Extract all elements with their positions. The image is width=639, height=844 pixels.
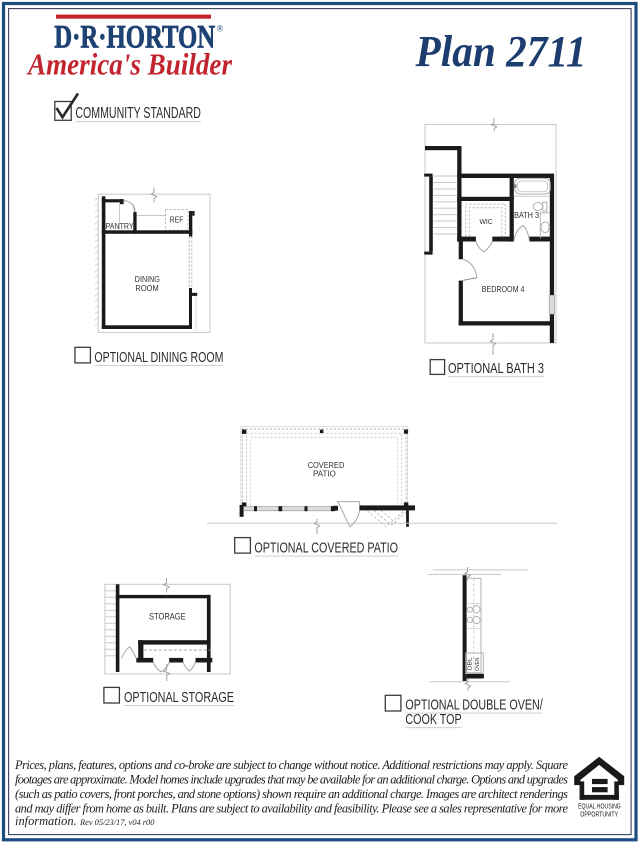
svg-text:OPPORTUNITY: OPPORTUNITY: [580, 810, 618, 819]
svg-text:footages are approximate. Mod: footages are approximate. Model homes in…: [15, 772, 568, 786]
svg-text:BATH 3: BATH 3: [514, 211, 539, 220]
svg-text:ROOM: ROOM: [135, 284, 158, 293]
svg-text:COOK TOP: COOK TOP: [405, 711, 461, 728]
svg-text:Plan 2711: Plan 2711: [415, 27, 587, 76]
svg-text:OPTIONAL COVERED PATIO: OPTIONAL COVERED PATIO: [254, 539, 398, 556]
svg-text:Prices, plans, features, optio: Prices, plans, features, options and co-…: [14, 758, 568, 772]
svg-text:REF: REF: [170, 216, 184, 225]
svg-text:COMMUNITY STANDARD: COMMUNITY STANDARD: [75, 105, 200, 122]
svg-text:®: ®: [217, 24, 224, 34]
svg-text:PANTRY: PANTRY: [106, 221, 134, 231]
svg-text:WIC: WIC: [480, 219, 493, 226]
svg-text:PATIO: PATIO: [313, 468, 336, 478]
svg-text:OPTIONAL DINING ROOM: OPTIONAL DINING ROOM: [94, 349, 223, 366]
svg-text:Rev 05/23/17, v04 r00: Rev 05/23/17, v04 r00: [79, 818, 155, 827]
svg-text:DINING: DINING: [135, 275, 160, 284]
svg-text:OPTIONAL STORAGE: OPTIONAL STORAGE: [124, 689, 234, 706]
svg-text:OVEN: OVEN: [475, 658, 481, 672]
svg-text:DBL: DBL: [468, 656, 474, 670]
svg-text:OPTIONAL BATH 3: OPTIONAL BATH 3: [448, 361, 544, 377]
svg-text:America's Builder: America's Builder: [26, 47, 233, 82]
svg-text:and may differ from home as bu: and may differ from home as built. Plans…: [15, 801, 569, 815]
svg-text:BEDROOM 4: BEDROOM 4: [482, 285, 525, 294]
svg-text:information.: information.: [15, 814, 77, 828]
svg-text:(such as patio covers, front p: (such as patio covers, front porches, an…: [15, 787, 568, 801]
svg-text:STORAGE: STORAGE: [149, 612, 186, 622]
